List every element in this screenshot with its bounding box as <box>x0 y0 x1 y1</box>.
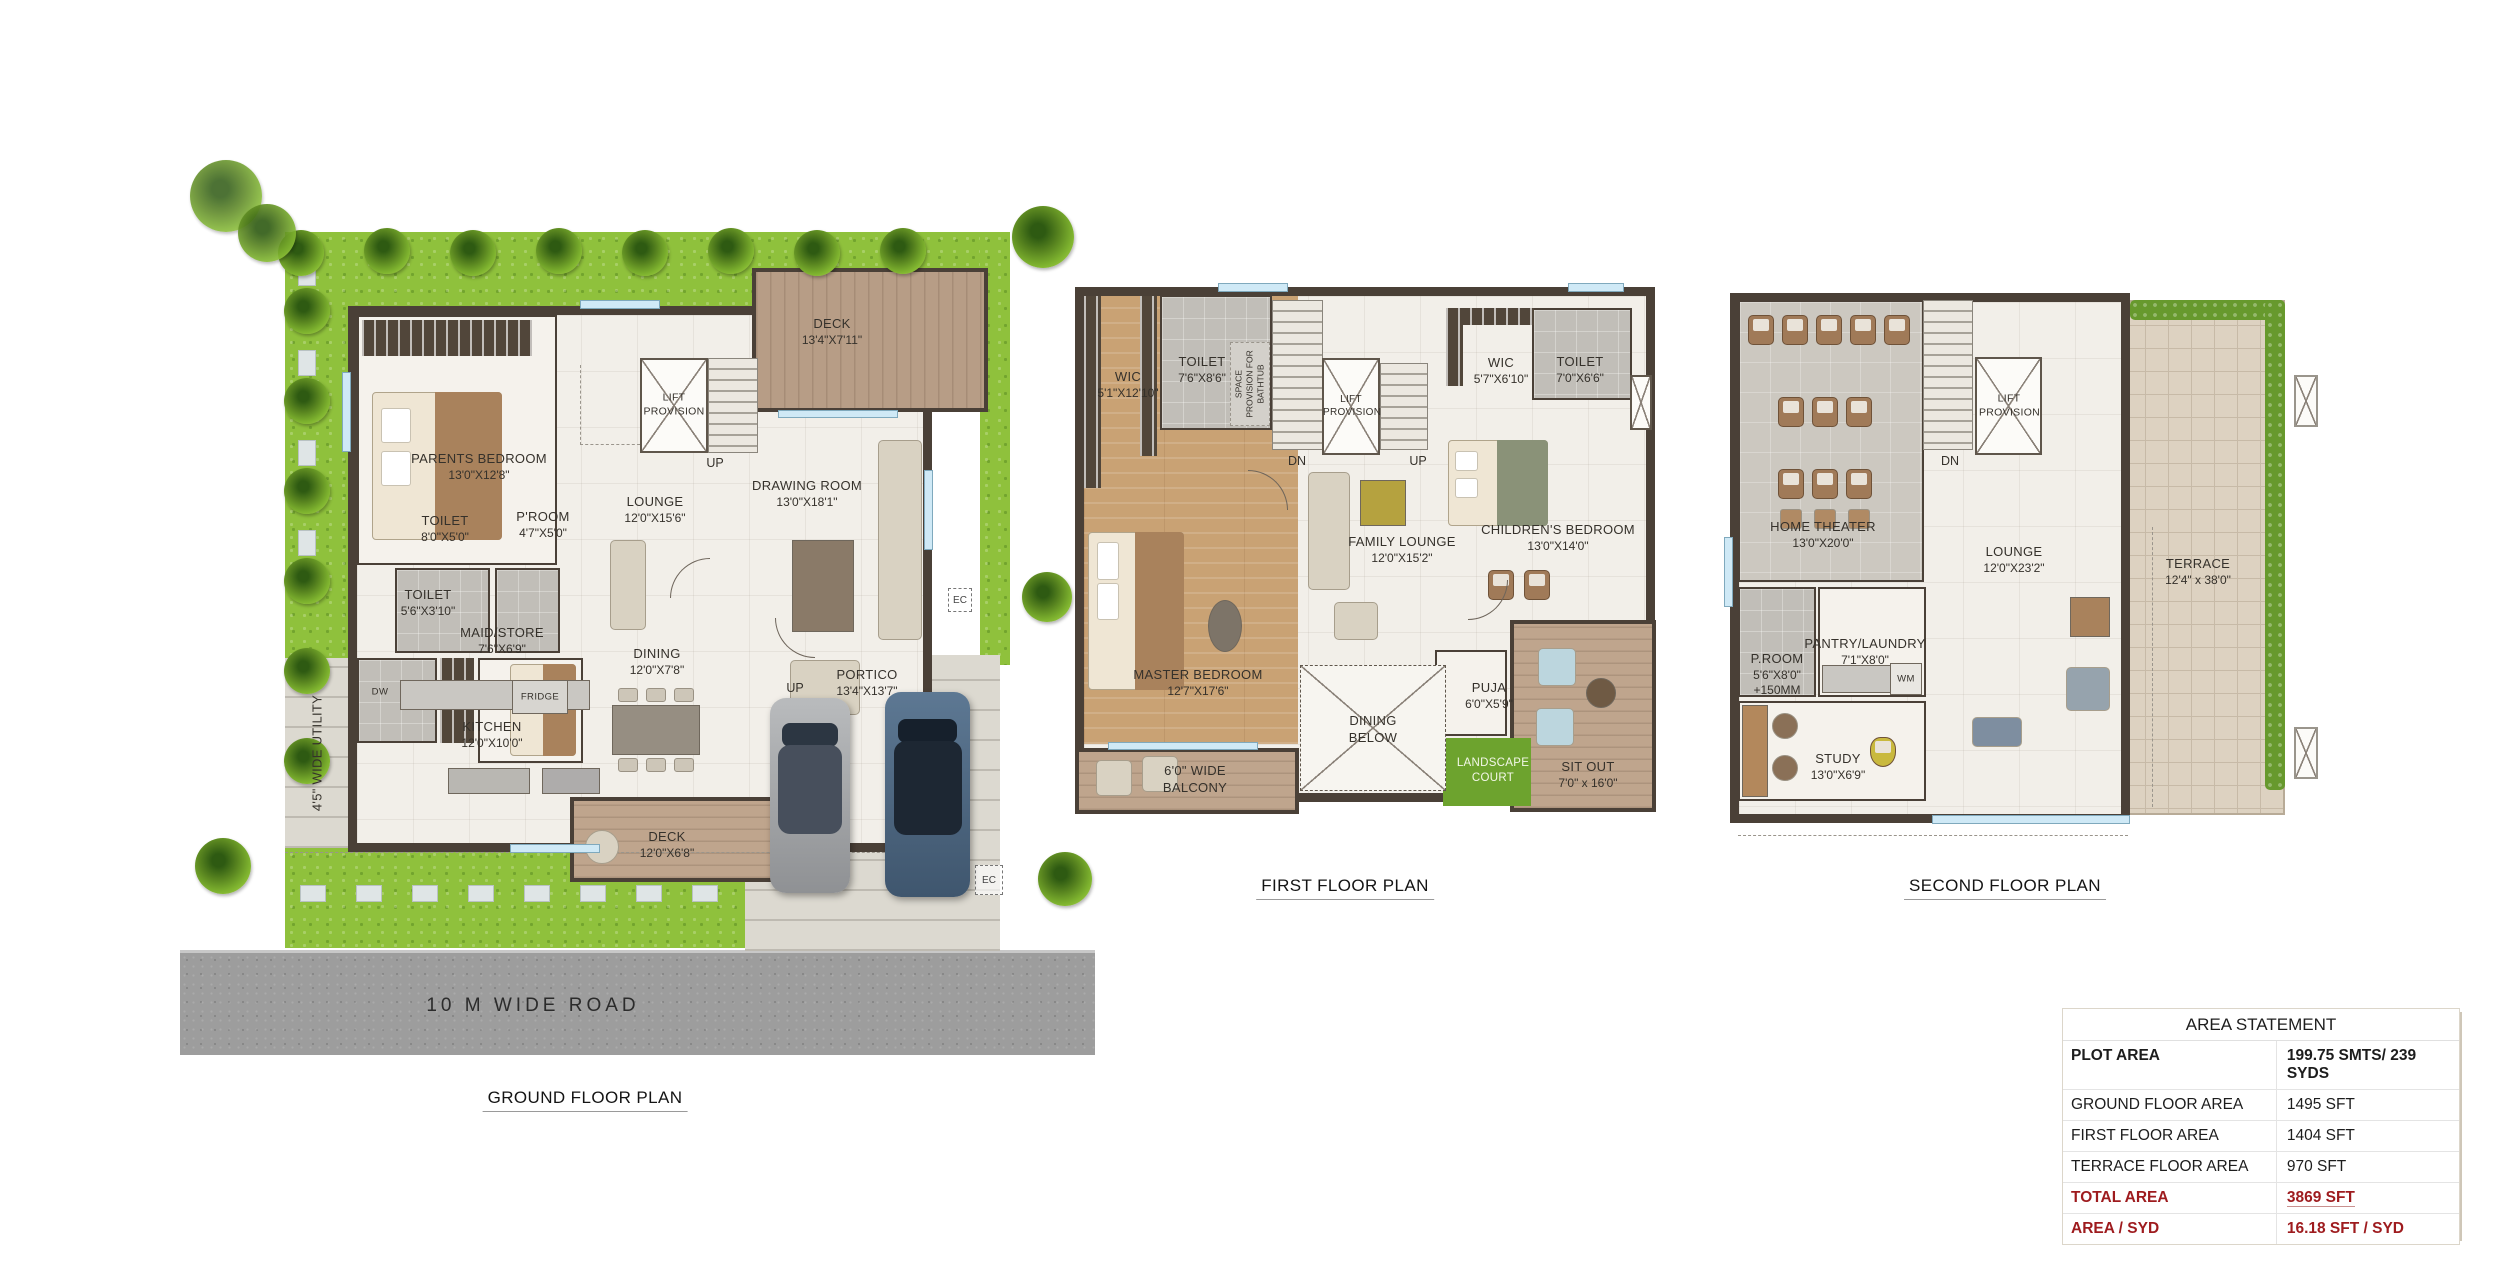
bed-blanket <box>1497 440 1548 526</box>
floor-plan-second: HOME THEATER13'0"X20'0" DN LIFT PROVISIO… <box>1722 287 2452 847</box>
car-blue <box>885 692 970 897</box>
stepping-stone <box>468 885 494 902</box>
bed <box>1448 440 1548 526</box>
stepping-stone <box>300 885 326 902</box>
sit-out-chair <box>1536 708 1574 746</box>
dn-marker: DN <box>1288 454 1306 468</box>
room-label-lift: LIFT PROVISION <box>643 391 705 418</box>
tree-icon <box>794 230 840 276</box>
window-marker <box>1630 375 1652 430</box>
car-windshield <box>898 719 958 744</box>
terrace-hedge-top <box>2130 300 2285 320</box>
room-label-portico: PORTICO13'4"X13'7" <box>836 667 897 699</box>
room-label-deck-top: DECK13'4"X7'11" <box>802 316 862 348</box>
stepping-stone <box>692 885 718 902</box>
second-floor-plan-title: SECOND FLOOR PLAN <box>1904 876 2106 900</box>
fridge-label: FRIDGE <box>521 692 559 703</box>
room-label-home-theater: HOME THEATER13'0"X20'0" <box>1770 519 1876 551</box>
stepping-stone <box>636 885 662 902</box>
room-label-toilet-right: TOILET7'0"X6'6" <box>1556 354 1604 386</box>
room-label-sit-out: SIT OUT7'0" x 16'0" <box>1558 759 1617 791</box>
bed-pillow <box>1097 542 1120 579</box>
desk <box>2070 597 2110 637</box>
ground-floor-plan-title: GROUND FLOOR PLAN <box>483 1088 688 1112</box>
tree-icon <box>1038 852 1092 906</box>
window <box>924 470 933 550</box>
tree-icon <box>536 228 582 274</box>
dining-chair <box>674 688 694 702</box>
room-label-dining-below: DINING BELOW <box>1338 713 1408 747</box>
window <box>1218 283 1288 292</box>
room-label-lounge: LOUNGE12'0"X15'6" <box>624 494 685 526</box>
staircase-up <box>1380 363 1428 450</box>
window-marker <box>2294 375 2318 427</box>
row-value: 1404 SFT <box>2277 1121 2459 1151</box>
room-label-parents-bedroom: PARENTS BEDROOM13'0"X12'8" <box>411 451 547 483</box>
tree-icon <box>1022 572 1072 622</box>
recliner-seat <box>1782 315 1808 345</box>
row-value: 1495 SFT <box>2277 1090 2459 1120</box>
room-label-childrens-bedroom: CHILDREN'S BEDROOM13'0"X14'0" <box>1481 522 1635 554</box>
room-label-wic-left: WIC5'1"X12'10" <box>1097 369 1158 401</box>
car-roof <box>894 741 962 835</box>
up-marker: UP <box>706 456 723 470</box>
recliner-seat <box>1846 469 1872 499</box>
row-value: 199.75 SMTS/ 239 SYDS <box>2277 1041 2459 1089</box>
up-marker: UP <box>1409 454 1426 468</box>
bean-chair <box>1870 737 1896 767</box>
room-label-family-lounge: FAMILY LOUNGE12'0"X15'2" <box>1348 534 1455 566</box>
table-row: GROUND FLOOR AREA 1495 SFT <box>2063 1090 2459 1121</box>
recliner-seat <box>1748 315 1774 345</box>
study-chair <box>1772 713 1798 739</box>
room-label-puja: PUJA6'0"X5'9" <box>1465 680 1513 712</box>
kitchen-sink <box>542 768 600 794</box>
sofa <box>1972 717 2022 747</box>
staircase-down <box>1272 300 1323 450</box>
dining-chair <box>674 758 694 772</box>
stepping-stone <box>298 440 316 466</box>
armchair <box>2066 667 2110 711</box>
room-label-lift: LIFT PROVISION <box>1979 392 2039 419</box>
room-label-pantry-laundry: PANTRY/LAUNDRY7'1"X8'0" <box>1804 636 1925 668</box>
tree-icon <box>364 228 410 274</box>
sliding-window <box>1932 815 2130 824</box>
room-label-p-room: P'ROOM4'7"X5'0" <box>516 509 569 541</box>
room-label-utility: 4'5" WIDE UTILITY <box>310 695 327 811</box>
room-label-terrace: TERRACE12'4" x 38'0" <box>2165 556 2231 588</box>
row-label: TERRACE FLOOR AREA <box>2063 1152 2277 1182</box>
up-marker: UP <box>786 681 803 695</box>
floor-plan-ground: 4'5" WIDE UTILITY 10 M WIDE ROAD DECK13'… <box>180 140 1110 1070</box>
dining-table <box>612 705 700 755</box>
row-label: FIRST FLOOR AREA <box>2063 1121 2277 1151</box>
dn-marker: DN <box>1941 454 1959 468</box>
room-label-deck-bottom: DECK12'0"X6'8" <box>640 829 694 861</box>
lounge-chair <box>1524 570 1550 600</box>
room-label-toilet-left: TOILET7'6"X8'6" <box>1178 354 1226 386</box>
terrace-dash-line <box>2152 527 2153 807</box>
car-silver <box>770 698 850 893</box>
floor-plan-first: WIC5'1"X12'10" TOILET7'6"X8'6" SPACE PRO… <box>1068 280 1668 840</box>
table-row: TERRACE FLOOR AREA 970 SFT <box>2063 1152 2459 1183</box>
stepping-stone <box>580 885 606 902</box>
study-chair <box>1772 755 1798 781</box>
ec-marker: EC <box>975 865 1003 895</box>
room-label-toilet-left: TOILET5'6"X3'10" <box>401 587 455 619</box>
tree-icon <box>284 468 330 514</box>
bed-pillow <box>1097 583 1120 620</box>
window <box>1724 537 1733 607</box>
tree-icon <box>622 230 668 276</box>
tree-icon <box>284 648 330 694</box>
window <box>510 844 600 853</box>
tree-icon <box>880 228 926 274</box>
room-label-maid-store: MAID/STORE7'6"X6'9" <box>460 625 544 657</box>
recliner-seat <box>1778 469 1804 499</box>
ottoman <box>1208 600 1242 652</box>
tree-icon <box>284 288 330 334</box>
sofa <box>610 540 646 630</box>
tree-icon <box>238 204 296 262</box>
row-label: TOTAL AREA <box>2063 1183 2277 1213</box>
dining-chair <box>646 758 666 772</box>
room-label-balcony: 6'0" WIDE BALCONY <box>1152 763 1238 797</box>
row-label: GROUND FLOOR AREA <box>2063 1090 2277 1120</box>
room-label-p-room: P.ROOM5'6"X8'0"+150MM <box>1751 651 1804 699</box>
dishwasher-label: DW <box>372 687 389 698</box>
row-value: 3869 SFT <box>2277 1183 2459 1213</box>
car-windshield <box>782 723 838 746</box>
wm-label: WM <box>1897 674 1915 685</box>
bed-pillow <box>1455 478 1479 498</box>
row-value: 970 SFT <box>2277 1152 2459 1182</box>
first-floor-plan-title: FIRST FLOOR PLAN <box>1256 876 1434 900</box>
row-value: 16.18 SFT / SYD <box>2277 1214 2459 1244</box>
stepping-stone <box>412 885 438 902</box>
room-label-lift: LIFT PROVISION <box>1323 393 1379 419</box>
room-label-toilet-top: TOILET8'0"X5'0" <box>421 513 469 545</box>
room-label-study: STUDY13'0"X6'9" <box>1811 751 1865 783</box>
armchair <box>1334 602 1378 640</box>
bathtub-provision-note: SPACE PROVISION FOR BATHTUB <box>1233 346 1266 422</box>
table-row-total: TOTAL AREA 3869 SFT <box>2063 1183 2459 1214</box>
stepping-stone <box>356 885 382 902</box>
stepping-stone <box>298 530 316 556</box>
dining-chair <box>646 688 666 702</box>
recliner-seat <box>1884 315 1910 345</box>
stepping-stone <box>298 350 316 376</box>
canopy-dash-line <box>1738 835 2128 836</box>
recliner-seat <box>1778 397 1804 427</box>
sofa <box>878 440 922 640</box>
table-row: FIRST FLOOR AREA 1404 SFT <box>2063 1121 2459 1152</box>
dining-chair <box>618 758 638 772</box>
sit-out-chair <box>1538 648 1576 686</box>
area-statement-title: AREA STATEMENT <box>2063 1009 2459 1041</box>
sofa <box>1308 472 1350 590</box>
room-label-wic-right: WIC5'7"X6'10" <box>1474 355 1528 387</box>
stair-dash <box>580 365 640 445</box>
road-label: 10 M WIDE ROAD <box>426 995 639 1017</box>
sit-out-table <box>1586 678 1616 708</box>
study-desk <box>1742 705 1768 797</box>
sliding-window <box>778 410 898 418</box>
wardrobe <box>362 320 532 356</box>
coffee-table <box>1360 480 1406 526</box>
tree-icon <box>195 838 251 894</box>
terrace-hedge-right <box>2265 300 2285 790</box>
room-label-dining: DINING12'0"X7'8" <box>630 646 684 678</box>
deck-top <box>752 268 988 412</box>
window <box>342 372 351 452</box>
bed-pillow <box>381 408 412 443</box>
recliner-seat <box>1816 315 1842 345</box>
stove <box>448 768 530 794</box>
room-label-kitchen: KITCHEN12'0"X10'0" <box>461 719 522 751</box>
tree-icon <box>1012 206 1074 268</box>
tree-icon <box>284 558 330 604</box>
wardrobe <box>1446 308 1463 386</box>
tree-icon <box>450 230 496 276</box>
window <box>580 300 660 309</box>
room-label-master-bedroom: MASTER BEDROOM12'7"X17'6" <box>1133 667 1262 699</box>
car-roof <box>778 745 842 835</box>
area-statement-table: AREA STATEMENT PLOT AREA 199.75 SMTS/ 23… <box>2062 1008 2460 1245</box>
table-row: PLOT AREA 199.75 SMTS/ 239 SYDS <box>2063 1041 2459 1090</box>
room-label-drawing-room: DRAWING ROOM13'0"X18'1" <box>752 478 862 510</box>
dining-chair <box>618 688 638 702</box>
window <box>1568 283 1624 292</box>
staircase <box>708 358 758 453</box>
recliner-seat <box>1812 469 1838 499</box>
recliner-seat <box>1846 397 1872 427</box>
room-label-lounge: LOUNGE12'0"X23'2" <box>1983 544 2044 576</box>
tree-icon <box>284 378 330 424</box>
bed-pillow <box>381 451 412 486</box>
window-marker <box>2294 727 2318 779</box>
table-row-area-per-syd: AREA / SYD 16.18 SFT / SYD <box>2063 1214 2459 1244</box>
sliding-window <box>1108 742 1258 750</box>
recliner-seat <box>1850 315 1876 345</box>
row-label: AREA / SYD <box>2063 1214 2277 1244</box>
balcony-chair <box>1096 760 1132 796</box>
recliner-seat <box>1812 397 1838 427</box>
tree-icon <box>708 228 754 274</box>
staircase-down <box>1923 300 1973 450</box>
row-label: PLOT AREA <box>2063 1041 2277 1089</box>
floor-plan-sheet: 4'5" WIDE UTILITY 10 M WIDE ROAD DECK13'… <box>0 0 2500 1269</box>
ec-marker: EC <box>948 588 972 612</box>
room-label-landscape-court: LANDSCAPE COURT <box>1453 756 1533 786</box>
bed-pillow <box>1455 451 1479 471</box>
stepping-stone <box>524 885 550 902</box>
